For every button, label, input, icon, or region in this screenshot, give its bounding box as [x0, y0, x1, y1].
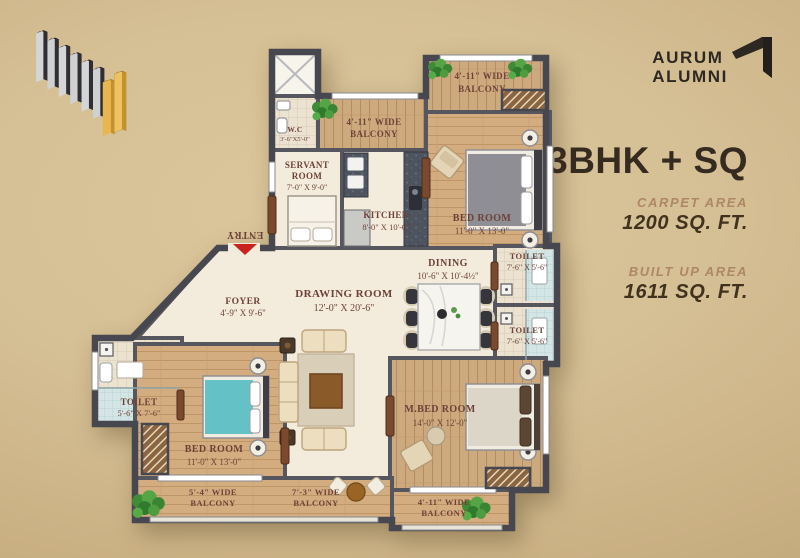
drawing-room-label: DRAWING ROOM: [295, 288, 393, 300]
foyer-dims: 4'-9" X 9'-6": [220, 308, 266, 318]
servant-bed: [288, 196, 336, 246]
master-bedroom-label: M.BED ROOM: [404, 404, 475, 415]
bedroom-top-right-dims: 11'-0" X 13'-0": [455, 226, 510, 236]
floor-plan-page: AURUM ALUMNI 3BHK + SQ CARPET AREA 1200 …: [0, 0, 800, 558]
balcony-bottom-right-label1: 4'-11" WIDE: [418, 497, 470, 507]
bedroom-top-right-label: BED ROOM: [453, 213, 512, 224]
wc-label: W.C: [287, 125, 302, 134]
dining-label: DINING: [428, 258, 468, 269]
sofa-set: [279, 330, 354, 450]
balcony-bottom-right-label2: BALCONY: [421, 508, 466, 518]
toilet-left-dims: 5'-6" X 7'-6": [117, 408, 160, 418]
servant-room-dims: 7'-0" X 9'-0": [287, 183, 328, 192]
toilet-right2-dims: 7'-6" X 5'-6": [507, 337, 548, 346]
kitchen-dims: 8'-0" X 10'-0": [362, 222, 409, 232]
toilet-right2-label: TOILET: [510, 325, 545, 335]
bedroom-bottom-left-label: BED ROOM: [185, 444, 244, 455]
dining-dims: 10'-6" X 10'-4½": [417, 271, 479, 281]
balcony-bottom-left-label1: 5'-4" WIDE: [189, 487, 237, 497]
servant-room-label2: ROOM: [292, 171, 323, 181]
balcony-top-right-label1: 4'-11" WIDE: [455, 71, 510, 81]
balcony-top-right-label2: BALCONY: [458, 84, 506, 94]
toilet-right1-dims: 7'-6" X 5'-6": [507, 263, 548, 272]
dining-set: [403, 284, 495, 350]
foyer-label: FOYER: [225, 297, 260, 307]
wc-dims: 3'-6"X5'-0": [280, 136, 310, 143]
balcony-top-center-label2: BALCONY: [350, 129, 398, 139]
floor-plan-drawing: ENTRY W.C 3'-6"X5'-0" 4'-11" WIDE BALCON…: [0, 0, 800, 558]
balcony-top-center-label1: 4'-11" WIDE: [347, 117, 402, 127]
balcony-bottom-left-label2: BALCONY: [190, 498, 235, 508]
balcony-bottom-center-label2: BALCONY: [293, 498, 338, 508]
toilet-left-label: TOILET: [121, 397, 158, 407]
bedroom-bottom-left-dims: 11'-0" X 13'-0": [187, 457, 242, 467]
entry-label: ENTRY: [226, 229, 263, 240]
toilet-right1-label: TOILET: [510, 251, 545, 261]
balcony-bottom-center-label1: 7'-3" WIDE: [292, 487, 340, 497]
kitchen-label: KITCHEN: [363, 210, 408, 220]
drawing-room-dims: 12'-0" X 20'-6": [314, 303, 375, 314]
master-bedroom-dims: 14'-0" X 12'-0": [413, 418, 468, 428]
servant-room-label1: SERVANT: [285, 160, 329, 170]
